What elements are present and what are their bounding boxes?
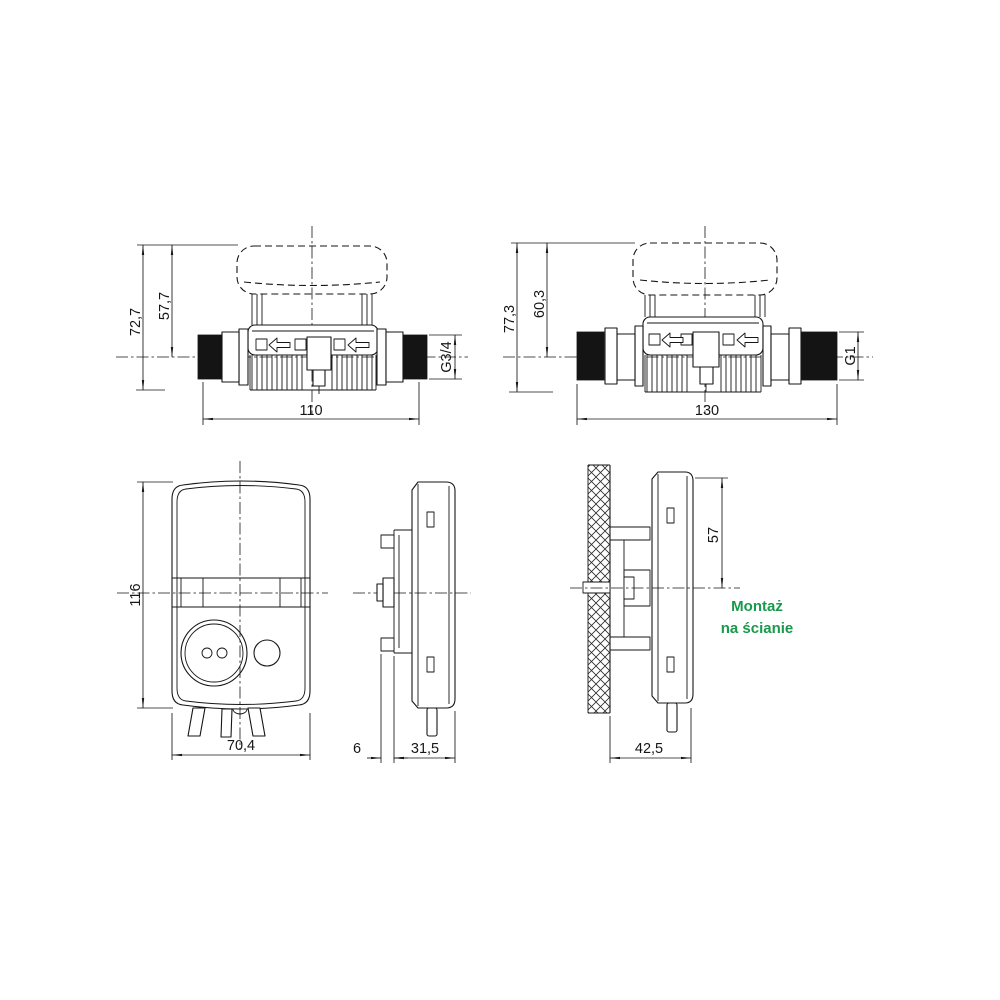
technical-drawing-canvas: 72,7 57,7 110 G3/4 [0, 0, 1000, 1000]
wall-mount-housing [652, 472, 693, 732]
dim-wall-top-to-axis: 57 [706, 527, 722, 543]
meter-g34-body [248, 325, 378, 394]
display-front-connectors [188, 708, 265, 737]
view-display-side: 6 31,5 [335, 455, 475, 775]
dim-side-bracket-depth: 6 [353, 741, 361, 757]
mounting-screw [583, 582, 610, 593]
wall-mount-note-line2: na ścianie [704, 618, 810, 640]
view-meter-g1: 77,3 60,3 130 G1 [495, 222, 880, 437]
display-front-dimensions: 116 70,4 [128, 482, 310, 760]
wall-mount-note: Montaż na ścianie [704, 596, 810, 640]
dim-g34-thread: G3/4 [439, 341, 455, 372]
view-meter-g34: 72,7 57,7 110 G3/4 [110, 222, 475, 437]
view-display-front: 116 70,4 [115, 455, 330, 775]
button-circle [254, 640, 280, 666]
dim-front-height: 116 [128, 583, 144, 606]
display-front-controls [181, 620, 280, 686]
cable [667, 703, 677, 732]
dim-side-depth: 31,5 [411, 741, 439, 757]
dim-g1-thread: G1 [843, 346, 859, 365]
dim-wall-total-depth: 42,5 [635, 741, 663, 757]
dim-g34-height-total: 72,7 [128, 308, 144, 336]
cable [427, 708, 437, 736]
dim-front-width: 70,4 [227, 738, 255, 754]
dim-g1-height-to-axis: 60,3 [532, 290, 548, 318]
dim-g1-length: 130 [695, 403, 719, 419]
display-side-housing [412, 482, 455, 736]
display-side-bracket [377, 530, 412, 653]
dim-g34-length: 110 [299, 403, 322, 419]
meter-g1-body [643, 317, 763, 392]
wall-mount-note-line1: Montaż [704, 596, 810, 618]
display-front-housing [172, 481, 310, 709]
dim-g34-height-to-axis: 57,7 [157, 292, 173, 320]
dim-g1-height-total: 77,3 [502, 305, 518, 333]
